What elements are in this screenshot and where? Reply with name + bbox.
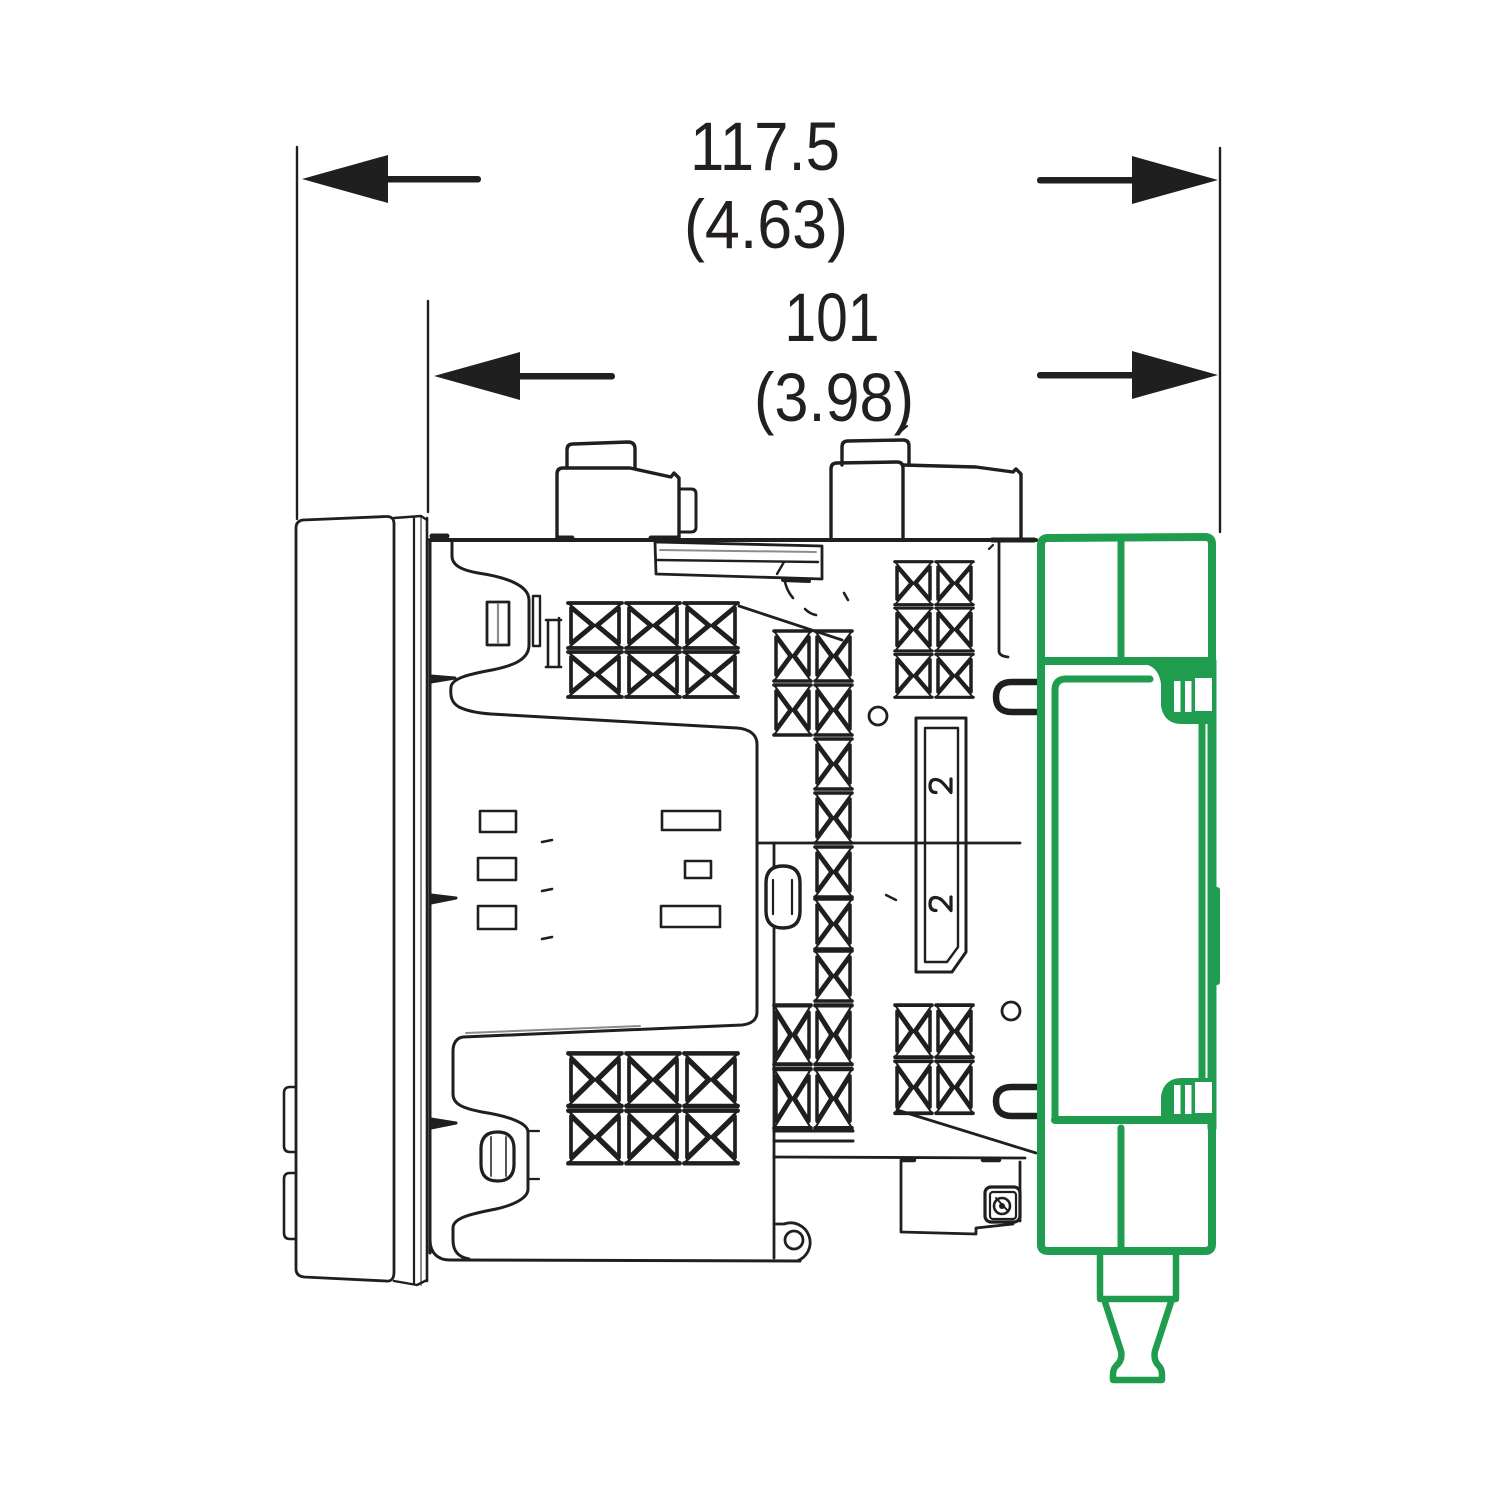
svg-text:117.5: 117.5: [690, 108, 840, 185]
svg-text:101: 101: [785, 279, 880, 356]
svg-text:(3.98): (3.98): [754, 359, 914, 436]
svg-text:(4.63): (4.63): [684, 186, 848, 263]
